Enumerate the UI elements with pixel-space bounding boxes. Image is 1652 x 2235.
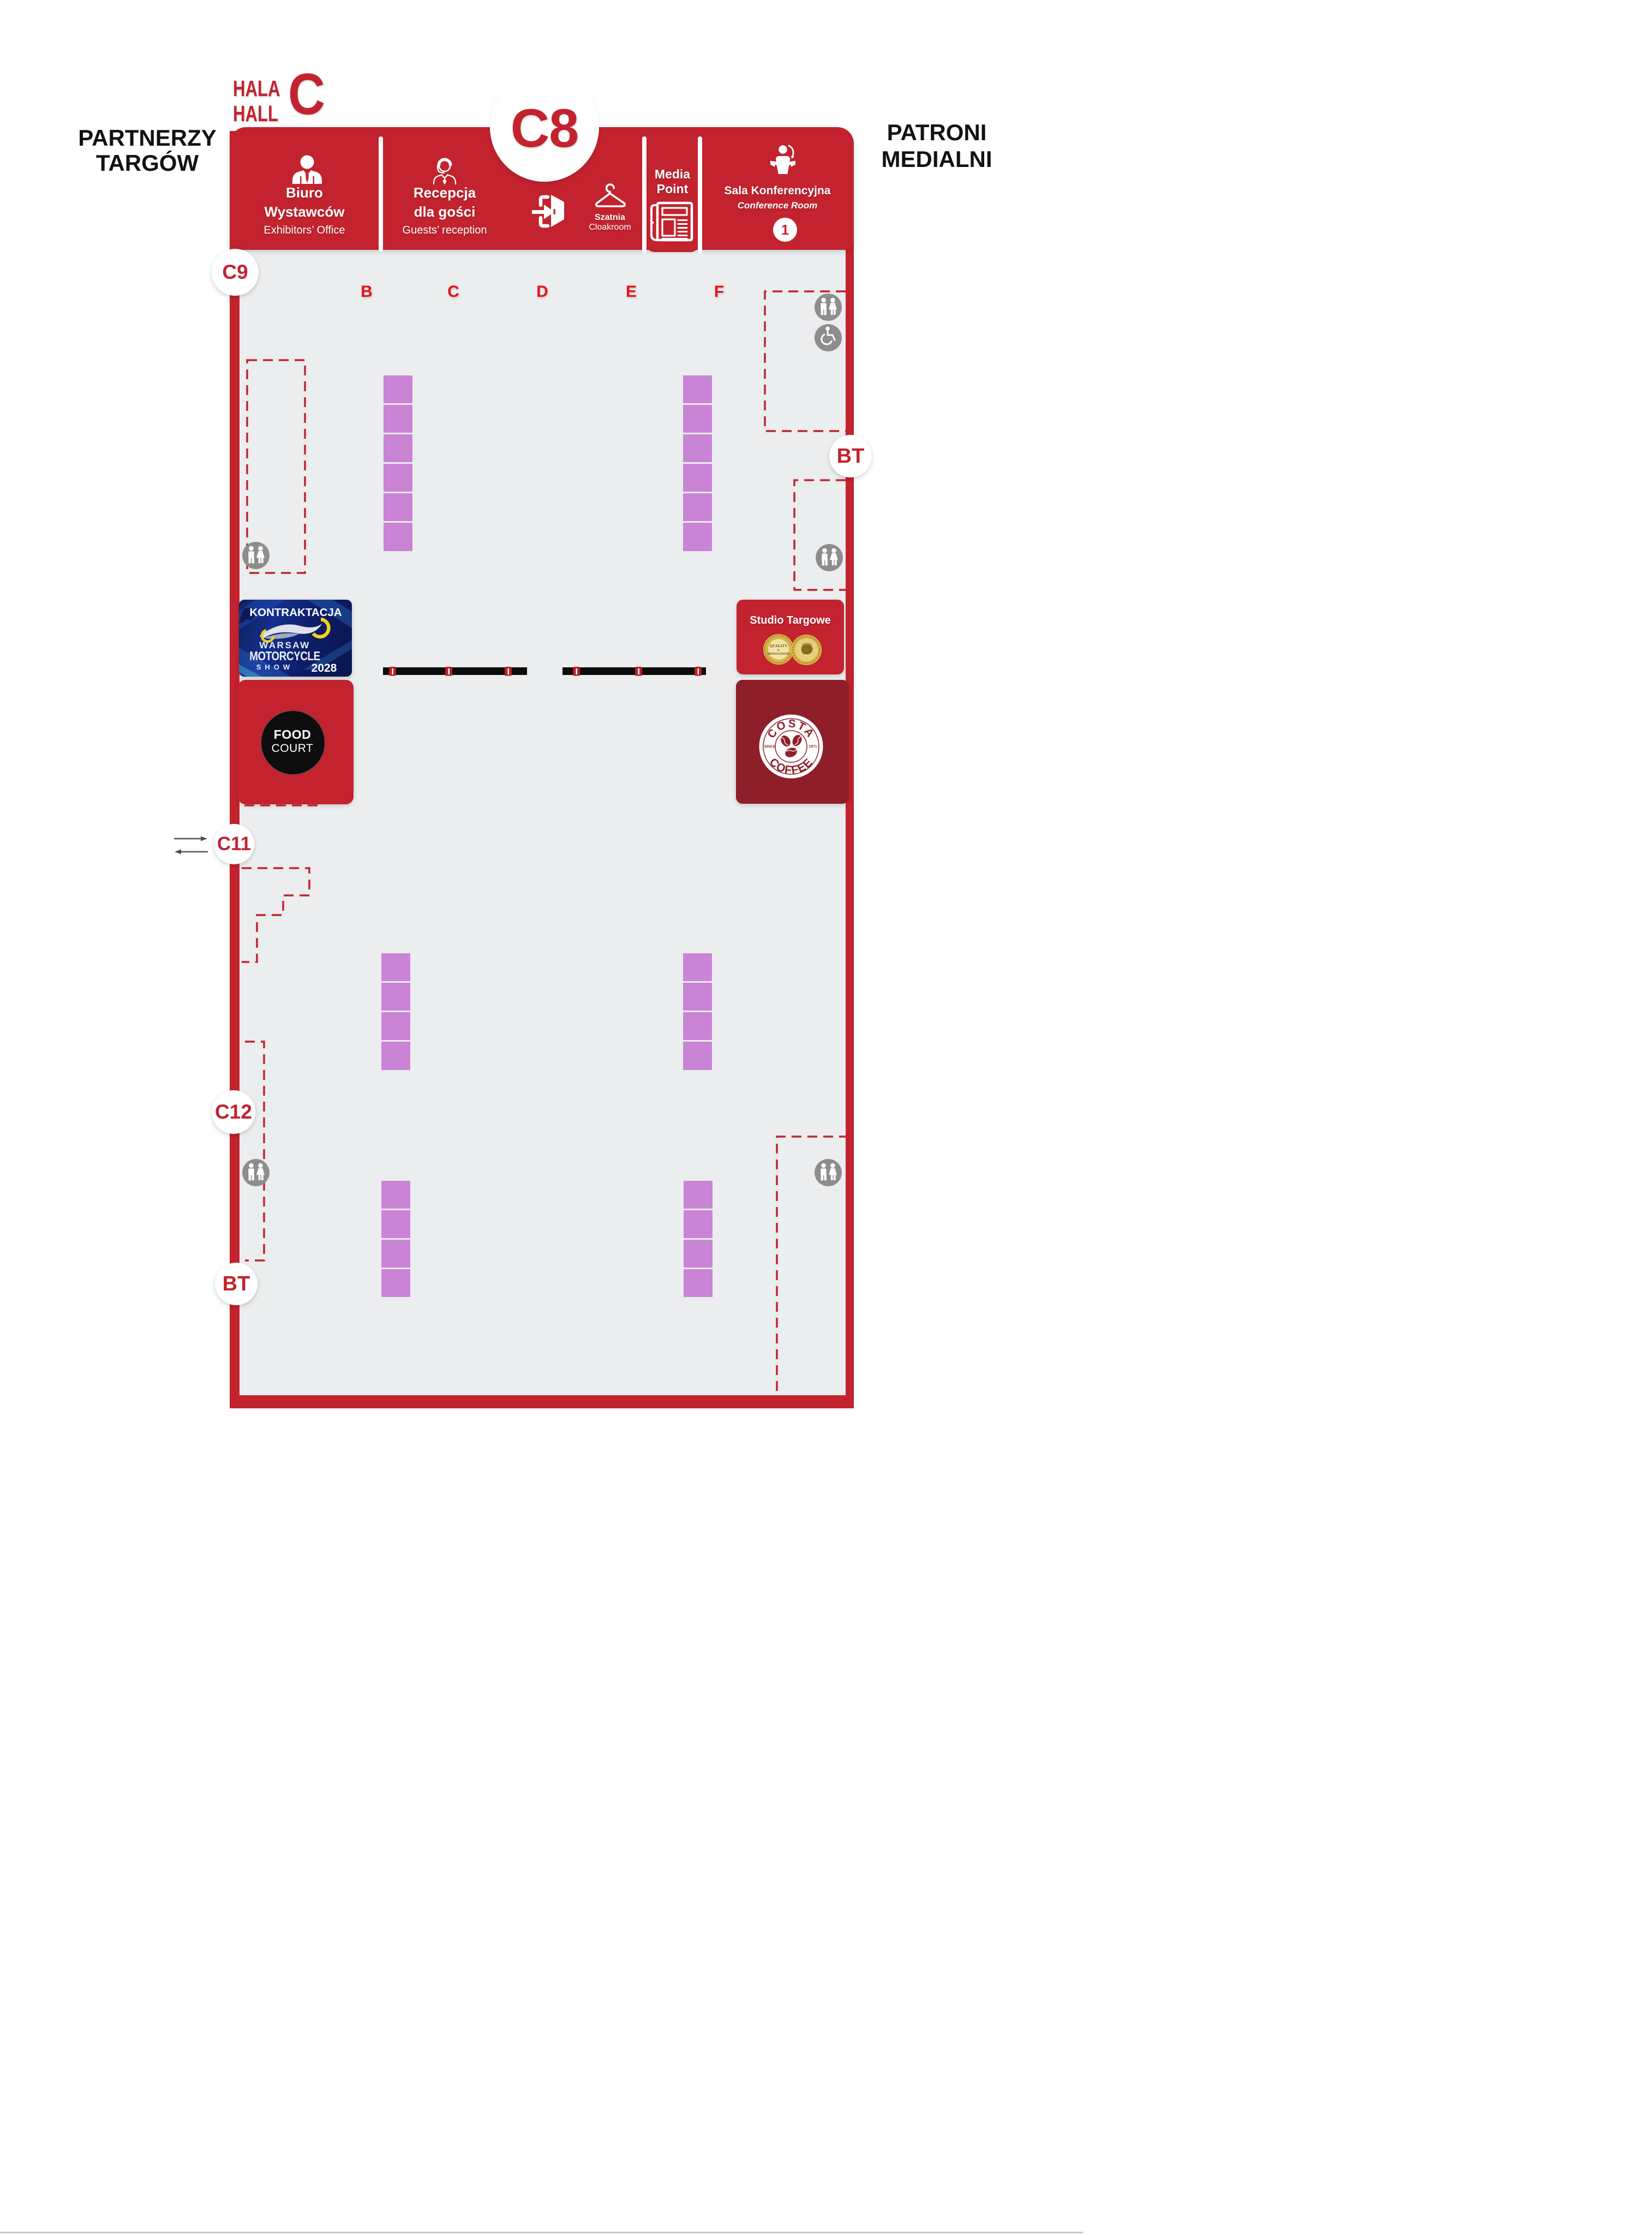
svg-text:1971: 1971 bbox=[809, 745, 817, 749]
svg-text:SINCE: SINCE bbox=[764, 745, 776, 749]
svg-text:QUALITY: QUALITY bbox=[770, 644, 788, 648]
svg-text:INNOVATION: INNOVATION bbox=[768, 652, 790, 656]
